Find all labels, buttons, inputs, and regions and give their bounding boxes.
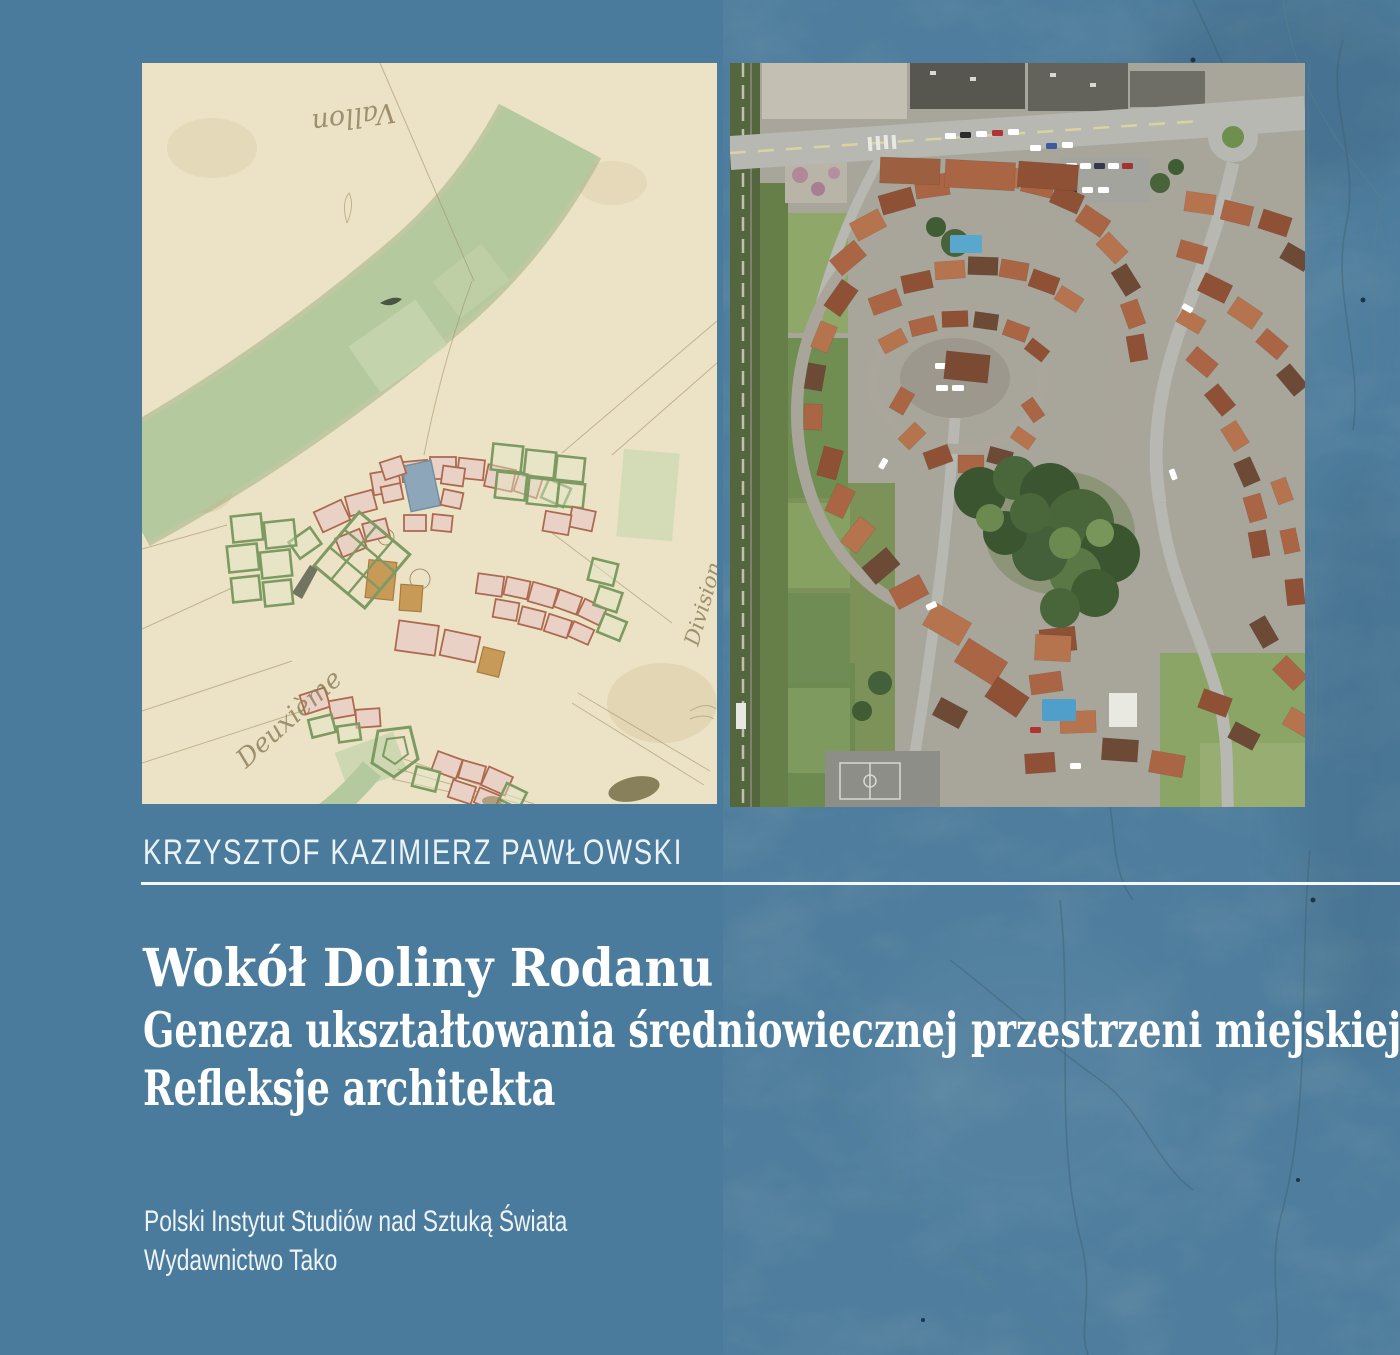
railway-strip	[730, 63, 760, 807]
aerial-photo-figure	[730, 63, 1305, 807]
book-cover: Vallon Deuxième Division	[0, 0, 1400, 1355]
roundabout	[1208, 112, 1258, 162]
historic-cadastral-map-figure: Vallon Deuxième Division	[142, 63, 717, 804]
title-rule-divider	[141, 882, 1400, 885]
author-name: KRZYSZTOF KAZIMIERZ PAWŁOWSKI	[143, 835, 683, 870]
book-subtitle-line1: Geneza ukształtowania średniowiecznej pr…	[143, 1006, 1400, 1055]
schoolyard	[825, 751, 940, 807]
book-subtitle-line2: Refleksje architekta	[143, 1064, 555, 1113]
small-pool	[950, 235, 982, 253]
publisher-imprint: Wydawnictwo Tako	[144, 1246, 337, 1276]
swimming-pool	[1042, 699, 1076, 721]
publisher-institute: Polski Instytut Studiów nad Sztuką Świat…	[144, 1207, 567, 1237]
book-title: Wokół Doliny Rodanu	[143, 943, 713, 995]
